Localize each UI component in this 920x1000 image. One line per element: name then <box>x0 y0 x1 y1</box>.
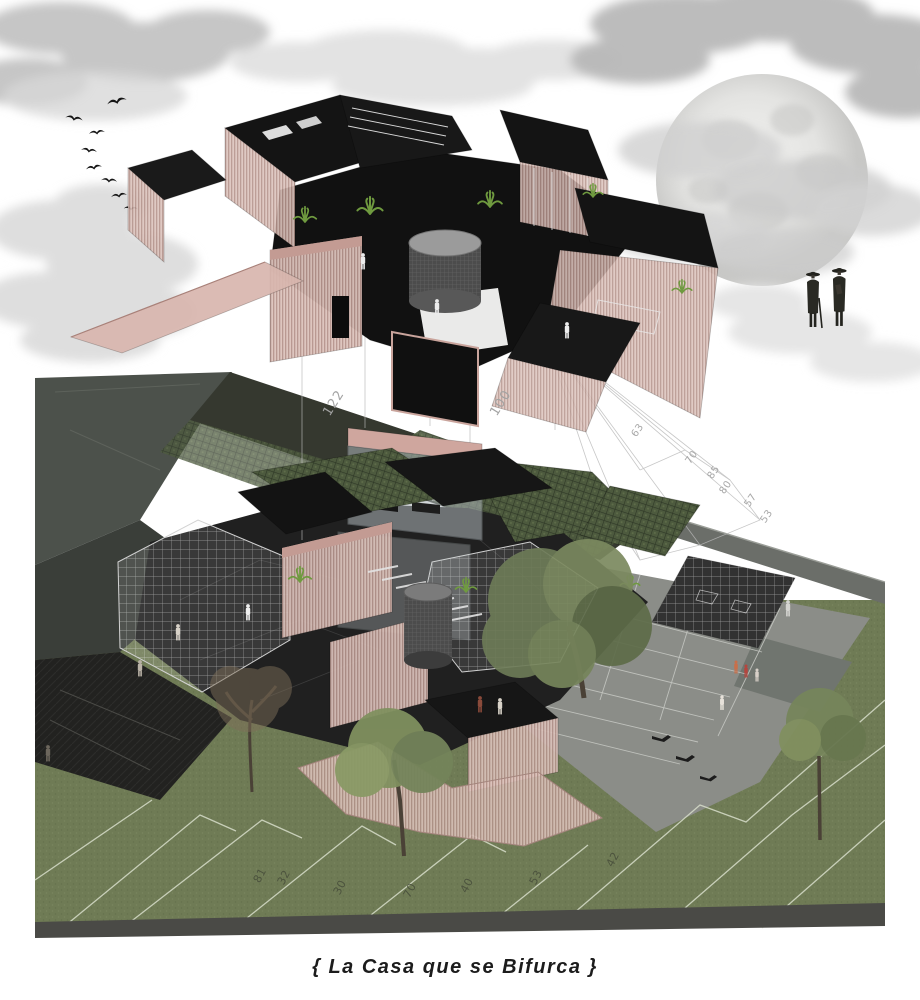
bird-icon <box>86 164 102 171</box>
render-canvas: 122 100 63 70 85 80 57 53 81 32 30 70 40… <box>0 0 920 1000</box>
artwork-caption: { La Casa que se Bifurca } <box>312 956 598 978</box>
cylinder-stair <box>409 230 481 313</box>
bird-icon <box>89 130 105 136</box>
contour-label: 80 <box>718 479 735 497</box>
door <box>332 296 349 338</box>
contour-label: 63 <box>630 422 647 440</box>
contour-label: 70 <box>684 449 701 467</box>
hung-room <box>392 332 478 426</box>
cylinder-stair <box>404 583 452 669</box>
contour-label: 85 <box>706 464 723 482</box>
bird-icon <box>101 178 117 184</box>
contour-label: 53 <box>759 508 776 526</box>
bird-icon <box>81 147 97 153</box>
architectural-render-la-casa-que-se-bifurca: 122 100 63 70 85 80 57 53 81 32 30 70 40… <box>0 0 920 1000</box>
